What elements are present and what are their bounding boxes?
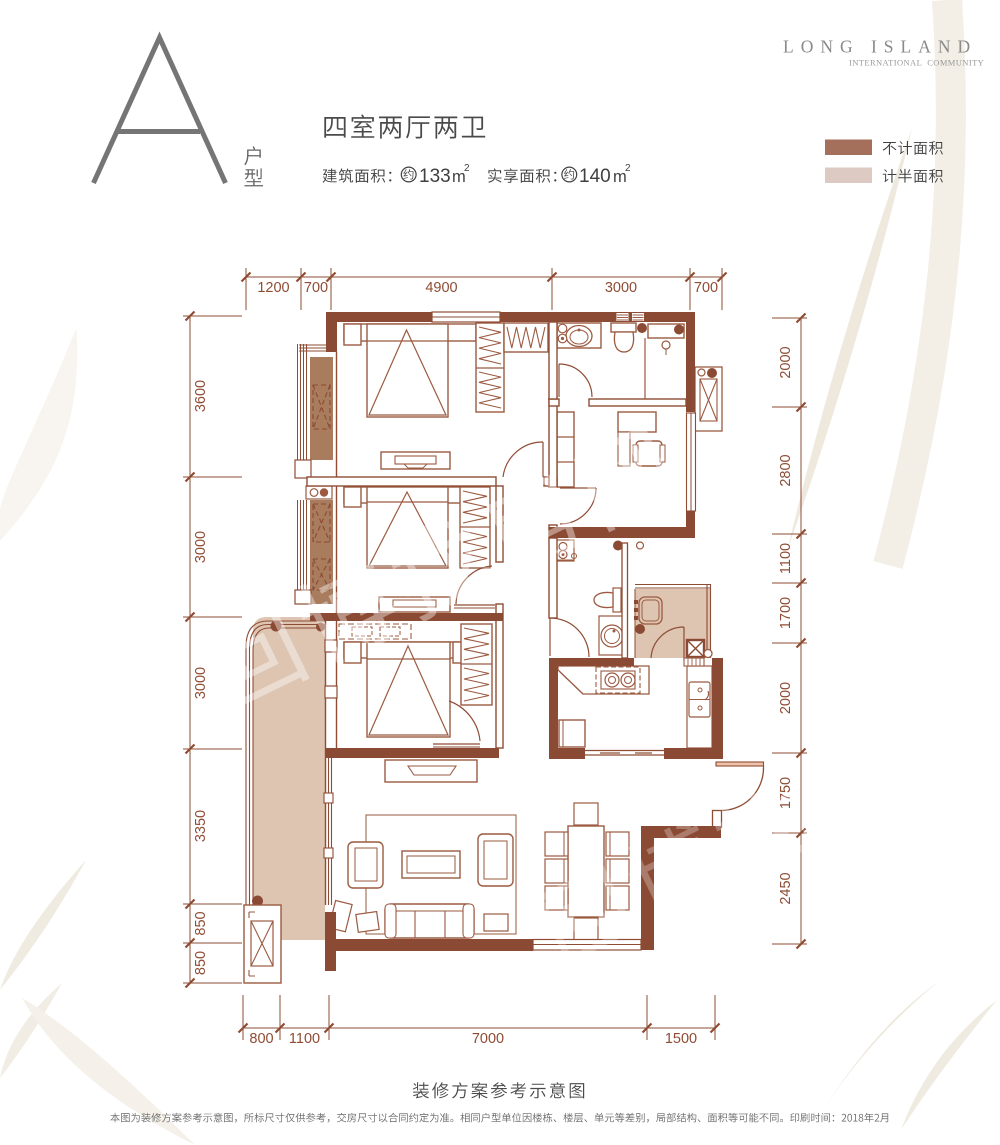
svg-text:1700: 1700 <box>778 597 794 629</box>
svg-text:3000: 3000 <box>193 531 209 563</box>
svg-text:2000: 2000 <box>778 682 794 714</box>
svg-text:1100: 1100 <box>289 1031 320 1047</box>
svg-text:LONG ISLAND: LONG ISLAND <box>783 37 977 57</box>
svg-text:140: 140 <box>579 166 611 187</box>
svg-text:1500: 1500 <box>665 1031 697 1047</box>
svg-text:2: 2 <box>625 163 631 174</box>
svg-text:700: 700 <box>304 280 328 296</box>
svg-text:4900: 4900 <box>425 280 457 296</box>
svg-text:3350: 3350 <box>193 810 209 842</box>
svg-text:3000: 3000 <box>193 667 209 699</box>
svg-text:2800: 2800 <box>778 454 794 486</box>
svg-text:1200: 1200 <box>257 280 289 296</box>
svg-text:133: 133 <box>419 166 451 187</box>
svg-text:850: 850 <box>193 951 209 975</box>
svg-text:2450: 2450 <box>778 872 794 904</box>
svg-text:700: 700 <box>694 280 718 296</box>
svg-text:2: 2 <box>464 163 470 174</box>
svg-text:1100: 1100 <box>778 543 794 574</box>
svg-text:800: 800 <box>249 1031 273 1047</box>
svg-text:3000: 3000 <box>605 280 637 296</box>
svg-text:2000: 2000 <box>778 346 794 378</box>
svg-text:INTERNATIONAL COMMUNITY: INTERNATIONAL COMMUNITY <box>849 58 984 68</box>
svg-text:7000: 7000 <box>472 1031 504 1047</box>
svg-text:3600: 3600 <box>193 380 209 412</box>
svg-text:850: 850 <box>193 911 209 935</box>
